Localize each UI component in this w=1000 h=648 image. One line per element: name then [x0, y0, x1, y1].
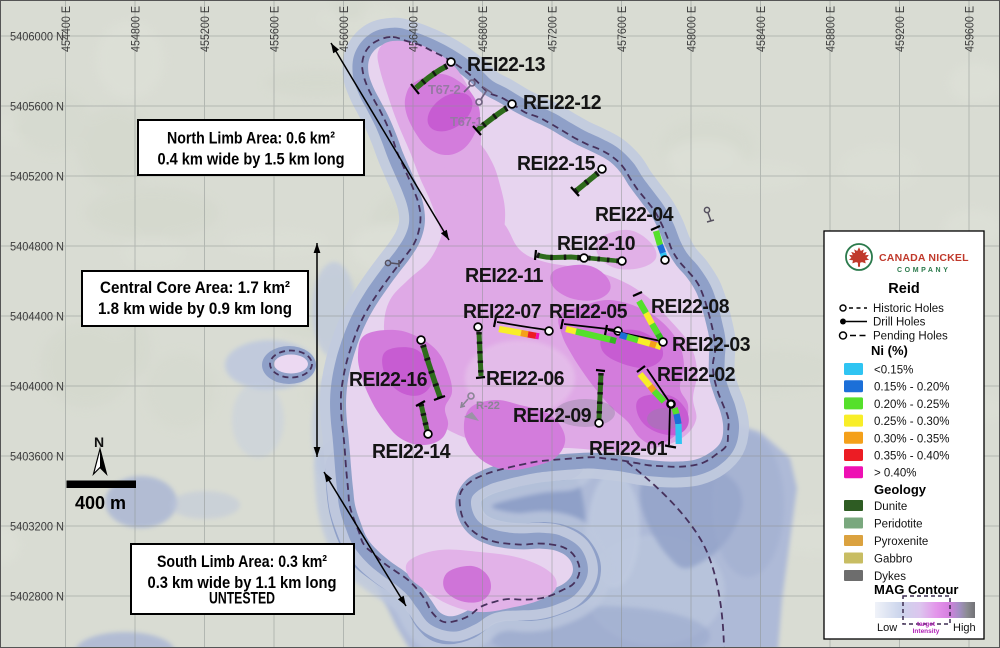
svg-text:N: N [94, 434, 104, 450]
svg-text:458000 E: 458000 E [685, 6, 699, 52]
svg-text:COMPANY: COMPANY [897, 267, 950, 274]
svg-text:457600 E: 457600 E [615, 6, 629, 52]
svg-text:target: target [917, 621, 936, 628]
svg-text:Peridotite: Peridotite [874, 519, 923, 531]
svg-text:Pyroxenite: Pyroxenite [874, 536, 928, 548]
svg-text:459600 E: 459600 E [963, 6, 977, 52]
svg-text:REI22-06: REI22-06 [486, 368, 564, 390]
svg-text:0.4 km wide by 1.5 km long: 0.4 km wide by 1.5 km long [158, 151, 345, 169]
svg-text:Low: Low [877, 622, 897, 634]
svg-text:0.35% - 0.40%: 0.35% - 0.40% [874, 451, 949, 463]
svg-text:REI22-07: REI22-07 [463, 301, 541, 323]
svg-text:Pending Holes: Pending Holes [873, 331, 948, 343]
svg-text:High: High [953, 622, 976, 634]
svg-text:UNTESTED: UNTESTED [209, 590, 275, 608]
svg-text:456800 E: 456800 E [476, 6, 490, 52]
svg-text:459200 E: 459200 E [893, 6, 907, 52]
svg-text:5404400 N: 5404400 N [10, 310, 64, 324]
svg-text:5404800 N: 5404800 N [10, 240, 64, 254]
svg-text:REI22-12: REI22-12 [523, 92, 601, 114]
svg-text:REI22-13: REI22-13 [467, 54, 545, 76]
svg-text:REI22-14: REI22-14 [372, 441, 451, 463]
svg-text:<0.15%: <0.15% [874, 365, 913, 377]
svg-text:456000 E: 456000 E [337, 6, 351, 52]
svg-text:T67-1: T67-1 [450, 114, 483, 129]
svg-text:400 m: 400 m [75, 493, 126, 513]
svg-text:Intensity: Intensity [913, 628, 940, 635]
svg-text:REI22-05: REI22-05 [549, 301, 627, 323]
svg-text:455600 E: 455600 E [268, 6, 282, 52]
svg-text:REI22-04: REI22-04 [595, 204, 674, 226]
svg-text:458800 E: 458800 E [824, 6, 838, 52]
svg-text:Ni (%): Ni (%) [871, 343, 908, 358]
svg-text:> 0.40%: > 0.40% [874, 468, 917, 480]
svg-text:MAG Contour: MAG Contour [874, 582, 958, 597]
svg-text:457200 E: 457200 E [546, 6, 560, 52]
svg-text:1.8 km wide by 0.9 km long: 1.8 km wide by 0.9 km long [98, 300, 292, 318]
svg-text:REI22-01: REI22-01 [589, 438, 667, 460]
svg-text:REI22-03: REI22-03 [672, 334, 750, 356]
svg-text:5405200 N: 5405200 N [10, 170, 64, 184]
svg-text:458400 E: 458400 E [754, 6, 768, 52]
svg-text:0.25% - 0.30%: 0.25% - 0.30% [874, 416, 949, 428]
svg-text:Drill Holes: Drill Holes [873, 317, 926, 329]
svg-text:5406000 N: 5406000 N [10, 30, 64, 44]
svg-text:455200 E: 455200 E [198, 6, 212, 52]
svg-text:454800 E: 454800 E [129, 6, 143, 52]
svg-text:5403600 N: 5403600 N [10, 450, 64, 464]
svg-text:Dunite: Dunite [874, 501, 907, 513]
svg-text:T67-2: T67-2 [428, 82, 461, 97]
svg-text:REI22-10: REI22-10 [557, 233, 635, 255]
svg-text:REI22-02: REI22-02 [657, 364, 735, 386]
svg-text:South Limb Area: 0.3 km²: South Limb Area: 0.3 km² [157, 553, 327, 571]
svg-text:Reid: Reid [888, 281, 919, 297]
svg-text:REI22-15: REI22-15 [517, 153, 595, 175]
svg-text:0.30% - 0.35%: 0.30% - 0.35% [874, 433, 949, 445]
svg-text:REI22-16: REI22-16 [349, 369, 427, 391]
svg-text:Central Core Area: 1.7 km²: Central Core Area: 1.7 km² [100, 279, 290, 297]
svg-text:Historic Holes: Historic Holes [873, 303, 944, 315]
svg-text:0.15% - 0.20%: 0.15% - 0.20% [874, 382, 949, 394]
svg-text:Geology: Geology [874, 482, 927, 497]
svg-text:5403200 N: 5403200 N [10, 520, 64, 534]
svg-text:5405600 N: 5405600 N [10, 100, 64, 114]
svg-text:R-22: R-22 [476, 400, 500, 412]
svg-text:REI22-09: REI22-09 [513, 405, 591, 427]
svg-text:REI22-11: REI22-11 [465, 265, 543, 287]
svg-text:North Limb Area: 0.6 km²: North Limb Area: 0.6 km² [167, 130, 335, 148]
svg-text:5404000 N: 5404000 N [10, 380, 64, 394]
svg-text:Gabbro: Gabbro [874, 554, 912, 566]
svg-text:0.20% - 0.25%: 0.20% - 0.25% [874, 399, 949, 411]
svg-text:CANADA NICKEL: CANADA NICKEL [879, 252, 969, 264]
svg-text:5402800 N: 5402800 N [10, 590, 64, 604]
svg-text:REI22-08: REI22-08 [651, 296, 729, 318]
